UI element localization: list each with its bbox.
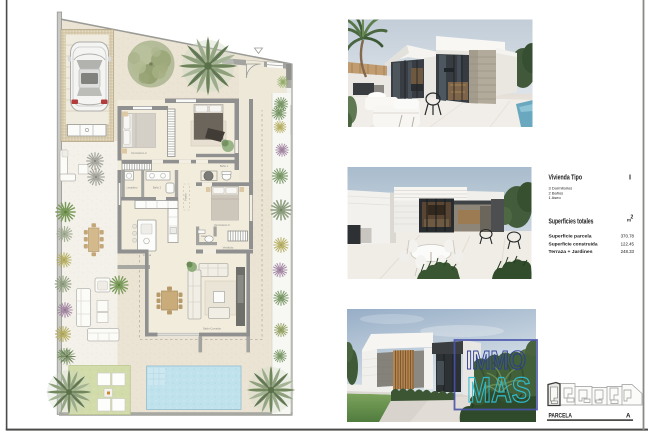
svg-text:Dormitorio 3: Dormitorio 3 (214, 223, 230, 227)
svg-text:Vivienda Tipo: Vivienda Tipo (549, 173, 583, 182)
svg-text:Terraza + Jardines: Terraza + Jardines (549, 249, 594, 254)
svg-text:Vestíbulo: Vestíbulo (223, 246, 234, 250)
svg-text:A: A (626, 413, 631, 420)
svg-text:Superficie parcela: Superficie parcela (549, 234, 593, 239)
svg-text:Superficies totales: Superficies totales (549, 217, 594, 226)
svg-text:Lavadero: Lavadero (127, 186, 138, 190)
svg-text:Pasillo: Pasillo (184, 193, 188, 201)
svg-text:I: I (629, 173, 631, 182)
svg-text:Dormitorio 2: Dormitorio 2 (131, 151, 147, 155)
svg-text:Baño 2: Baño 2 (153, 186, 162, 190)
svg-text:PARCELA: PARCELA (549, 413, 573, 420)
svg-text:370.78: 370.78 (621, 234, 635, 239)
svg-text:Superficie construida: Superficie construida (549, 241, 599, 246)
svg-text:Baño 1: Baño 1 (220, 164, 229, 168)
svg-text:122.45: 122.45 (621, 241, 635, 246)
svg-text:248.33: 248.33 (621, 249, 635, 254)
svg-text:Salón-Comedor: Salón-Comedor (203, 327, 221, 331)
svg-text:2: 2 (631, 215, 634, 221)
svg-text:MAS: MAS (467, 371, 531, 410)
svg-text:1 Aseo: 1 Aseo (549, 195, 562, 200)
svg-text:Aseo: Aseo (201, 234, 207, 238)
